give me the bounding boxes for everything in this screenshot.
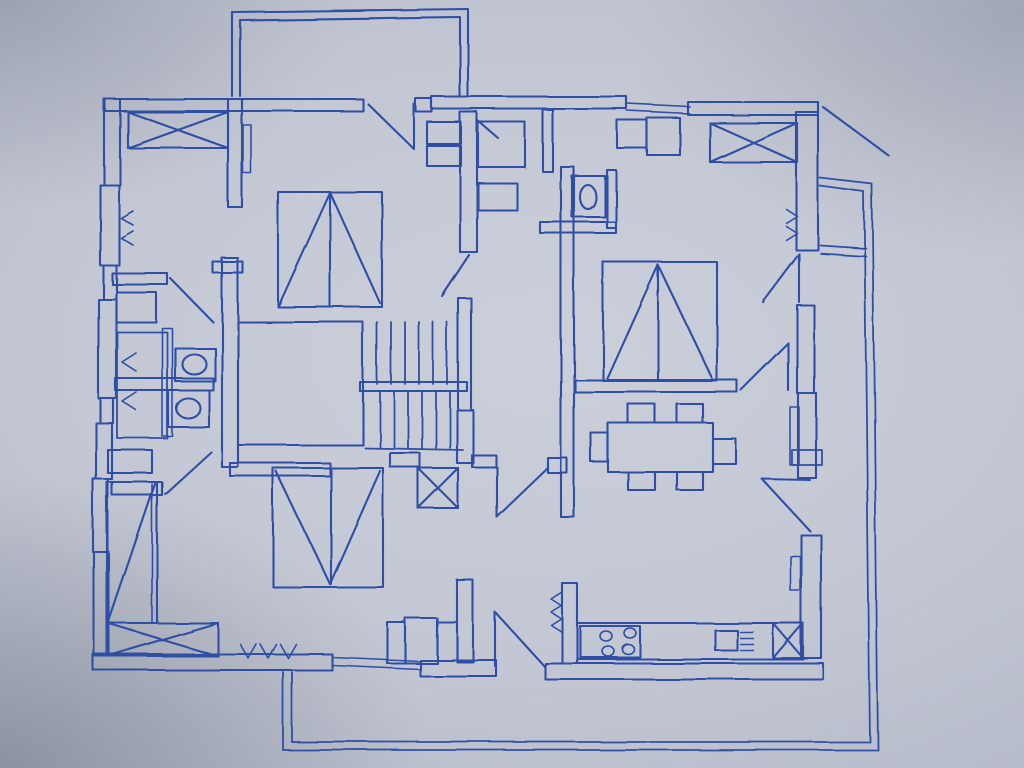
kitchen-counter bbox=[577, 623, 803, 659]
chair bbox=[713, 439, 736, 464]
toilet-tank bbox=[572, 176, 605, 217]
chair bbox=[677, 472, 703, 490]
door-right-2-leaf bbox=[762, 479, 810, 480]
wall-wc-mid bbox=[115, 378, 213, 390]
kitchen-step bbox=[405, 618, 437, 663]
vent-wc-2 bbox=[122, 392, 136, 410]
coil-mark-2 bbox=[551, 605, 562, 619]
radiator-right-2 bbox=[790, 556, 800, 590]
shower-box bbox=[117, 332, 167, 438]
sink bbox=[108, 450, 152, 473]
window-bottom-b bbox=[332, 665, 420, 669]
window-left-2 bbox=[98, 299, 116, 398]
wall-top-mid bbox=[432, 97, 627, 109]
wall-niche-bottom bbox=[540, 222, 616, 233]
wall-kitchen-part bbox=[562, 583, 577, 663]
wall-top-left-end bbox=[416, 99, 432, 112]
ink-layer bbox=[93, 9, 888, 750]
vent-left-2 bbox=[121, 231, 133, 245]
sink bbox=[116, 292, 156, 322]
wall-left-conn1 bbox=[103, 265, 116, 299]
terrace-right-outer bbox=[872, 184, 878, 750]
wall-v1 bbox=[228, 99, 242, 207]
wall-corridor-3 bbox=[472, 455, 496, 467]
wall-v2b bbox=[458, 298, 471, 410]
wall-right-stub bbox=[792, 450, 822, 465]
wall-niche-right bbox=[607, 170, 616, 228]
terrace-door-swing bbox=[823, 107, 888, 155]
window-right-1 bbox=[797, 305, 814, 393]
coil-mark-3 bbox=[551, 618, 562, 632]
balcony-door-swing bbox=[368, 104, 414, 149]
kitchen-sink bbox=[715, 630, 737, 650]
wall-corridor-1 bbox=[230, 463, 330, 476]
door-wc1-swing bbox=[170, 278, 213, 322]
bed-line bbox=[330, 471, 380, 584]
window-top-b bbox=[627, 111, 690, 114]
bed-line bbox=[330, 193, 380, 303]
bed-line bbox=[658, 265, 712, 378]
door-bedroom2-swing bbox=[442, 255, 469, 296]
door-corridor-swing bbox=[497, 468, 548, 517]
wall-kitchen-stub bbox=[457, 580, 473, 662]
wall-bottom-right bbox=[545, 663, 823, 679]
stove-burner bbox=[622, 644, 634, 654]
bed-line bbox=[607, 265, 658, 378]
threshold-mark bbox=[280, 644, 296, 658]
toilet-bowl bbox=[182, 354, 206, 374]
chair bbox=[628, 404, 655, 423]
threshold-mark bbox=[240, 644, 256, 658]
vent-wc-1 bbox=[122, 353, 136, 371]
floor-plan-drawing bbox=[0, 0, 1024, 768]
toilet-bowl bbox=[580, 185, 596, 209]
cabinet bbox=[647, 118, 680, 155]
wall-top-left bbox=[105, 99, 363, 111]
stove-burner bbox=[600, 631, 612, 641]
wall-right-upper bbox=[796, 112, 818, 250]
window-top-a bbox=[627, 104, 690, 107]
shelf bbox=[427, 146, 461, 166]
chair bbox=[591, 433, 608, 462]
terrace-top-inner bbox=[820, 186, 864, 192]
shelf bbox=[427, 122, 461, 144]
door-bedroom3-swing bbox=[741, 343, 788, 390]
window-left-1 bbox=[100, 185, 119, 265]
wall-v1b bbox=[222, 258, 238, 467]
bed-line bbox=[279, 193, 330, 305]
wall-v2c bbox=[457, 410, 473, 463]
toilet-tank bbox=[168, 390, 209, 427]
bed-line bbox=[276, 471, 330, 584]
terrace-right-inner bbox=[864, 192, 870, 742]
bed bbox=[273, 468, 383, 587]
door-leaf-room1 bbox=[243, 125, 251, 173]
door-right-1-swing bbox=[763, 254, 799, 302]
stove-burner bbox=[624, 628, 636, 638]
door-bottom-swing bbox=[496, 613, 545, 667]
terrace-top-outer bbox=[820, 178, 872, 184]
wardrobe-tall-diag bbox=[109, 484, 155, 620]
coil-mark-1 bbox=[551, 592, 562, 606]
door-right-2-swing bbox=[763, 480, 810, 531]
chair bbox=[628, 472, 655, 490]
bed bbox=[603, 262, 717, 381]
vent-left-1 bbox=[121, 211, 133, 225]
wall-v2 bbox=[460, 112, 477, 252]
wall-wc-top bbox=[112, 273, 167, 284]
cabinet bbox=[617, 120, 647, 148]
stairwell bbox=[238, 322, 363, 445]
balcony-inner bbox=[240, 17, 460, 96]
terrace-step-a bbox=[820, 245, 866, 248]
terrace-step-b bbox=[820, 253, 866, 256]
stove bbox=[580, 626, 640, 657]
threshold-mark bbox=[260, 644, 276, 658]
kitchen-step bbox=[387, 622, 405, 663]
wall-corridor-pillar bbox=[548, 458, 567, 473]
cabinet bbox=[478, 183, 517, 210]
window-bottom-a bbox=[332, 657, 420, 661]
chair bbox=[677, 404, 703, 423]
stove-burner bbox=[602, 646, 614, 656]
door-wc2-swing bbox=[165, 452, 211, 494]
balcony-outer bbox=[232, 9, 468, 96]
wall-v3top bbox=[543, 110, 553, 172]
floor-plan-photo bbox=[0, 0, 1024, 768]
window-left-4 bbox=[93, 479, 108, 552]
stair-landing bbox=[360, 382, 467, 391]
stair-bottom-edge bbox=[365, 448, 463, 450]
cabinet bbox=[478, 122, 525, 167]
dining-table bbox=[608, 423, 713, 472]
wall-left-conn2 bbox=[100, 398, 113, 423]
toilet-bowl bbox=[176, 398, 200, 418]
wall-corridor-2 bbox=[390, 453, 420, 467]
kitchen-step bbox=[437, 622, 457, 660]
